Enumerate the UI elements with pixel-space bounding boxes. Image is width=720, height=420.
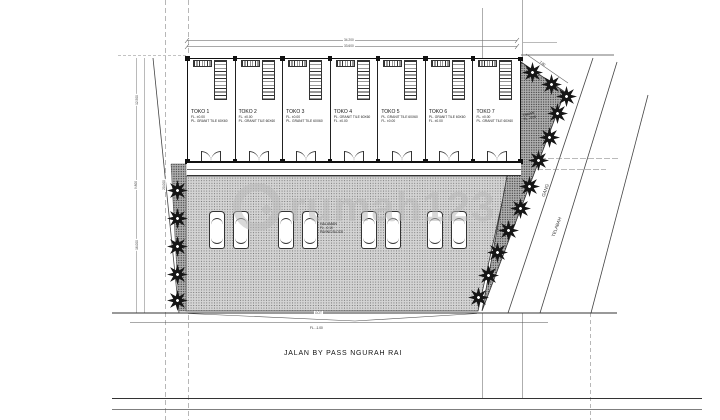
unit-note-2: FL. ±0.00 xyxy=(334,119,371,123)
tree-icon xyxy=(539,127,560,148)
staircase-icon xyxy=(214,60,227,100)
double-door-swing-icon xyxy=(344,151,364,161)
unit-label: TOKO 4 PL. GRANIT TILE 60X60 FL. ±0.00 xyxy=(334,109,371,123)
shop-unit-5: TOKO 5 PL. GRANIT TILE 60X60 FL. ±0.00 xyxy=(377,59,425,161)
tree-icon xyxy=(547,103,568,124)
unit-note-2: FL. ±0.00 xyxy=(429,119,466,123)
shop-unit-1: TOKO 1 FL. ±0.00 PL. GRANIT TILE 60X60 xyxy=(188,59,235,161)
window-hatch-icon xyxy=(383,60,402,67)
double-door-swing-icon xyxy=(296,151,316,161)
staircase-icon xyxy=(357,60,370,100)
unit-note-2: PL. GRANIT TILE 60X60 xyxy=(191,119,228,123)
unit-note-2: FL. ±0.00 xyxy=(381,119,418,123)
window-hatch-icon xyxy=(241,60,260,67)
tree-icon xyxy=(522,62,543,83)
shop-unit-6: TOKO 6 PL. GRANIT TILE 60X60 FL. ±0.00 xyxy=(425,59,473,161)
parked-car-icon xyxy=(361,211,377,249)
dimension-top-outer: 34.200 xyxy=(343,38,355,42)
window-hatch-icon xyxy=(336,60,355,67)
site-plan: TOKO 1 FL. ±0.00 PL. GRANIT TILE 60X60 T… xyxy=(0,0,720,420)
tree-icon xyxy=(167,264,188,285)
window-hatch-icon xyxy=(288,60,307,67)
tree-icon xyxy=(167,180,188,201)
window-hatch-icon xyxy=(478,60,497,67)
gutter-label: GOT xyxy=(314,311,323,315)
parked-car-icon xyxy=(278,211,294,249)
parked-car-icon xyxy=(427,211,443,249)
tree-icon xyxy=(556,86,577,107)
unit-note-2: PL. GRANIT TILE 60X60 xyxy=(286,119,323,123)
staircase-icon xyxy=(499,60,512,100)
column-icon xyxy=(518,57,523,62)
front-walkway xyxy=(187,162,521,176)
shop-unit-2: TOKO 2 FL. ±0.00 PL. GRANIT TILE 60X60 xyxy=(235,59,283,161)
tree-icon xyxy=(528,150,549,171)
tree-icon xyxy=(510,198,531,219)
tree-icon xyxy=(167,208,188,229)
unit-note-2: PL. GRANIT TILE 60X60 xyxy=(476,119,513,123)
unit-note-2: PL. GRANIT TILE 60X60 xyxy=(239,119,276,123)
double-door-swing-icon xyxy=(487,151,507,161)
unit-label: TOKO 6 PL. GRANIT TILE 60X60 FL. ±0.00 xyxy=(429,109,466,123)
double-door-swing-icon xyxy=(201,151,221,161)
staircase-icon xyxy=(309,60,322,100)
tree-icon xyxy=(498,220,519,241)
double-door-swing-icon xyxy=(392,151,412,161)
tree-icon xyxy=(487,242,508,263)
parked-car-icon xyxy=(302,211,318,249)
staircase-icon xyxy=(452,60,465,100)
dimension-left-inner: 20.000 xyxy=(162,179,166,191)
double-door-swing-icon xyxy=(439,151,459,161)
dimension-top-inner: 33.600 xyxy=(343,44,355,48)
shop-unit-7: TOKO 7 FL. ±0.00 PL. GRANIT TILE 60X60 xyxy=(472,59,520,161)
main-road-label: JALAN BY PASS NGURAH RAI xyxy=(284,350,402,359)
tree-icon xyxy=(468,287,489,308)
unit-label: TOKO 3 FL. ±0.00 PL. GRANIT TILE 60X60 xyxy=(286,109,323,123)
tree-icon xyxy=(519,176,540,197)
window-hatch-icon xyxy=(193,60,212,67)
shop-row-building: TOKO 1 FL. ±0.00 PL. GRANIT TILE 60X60 T… xyxy=(187,58,521,162)
dimension-left-mid: 9.800 xyxy=(134,180,138,190)
parked-car-icon xyxy=(451,211,467,249)
parked-car-icon xyxy=(385,211,401,249)
shop-unit-3: TOKO 3 FL. ±0.00 PL. GRANIT TILE 60X60 xyxy=(282,59,330,161)
unit-label: TOKO 1 FL. ±0.00 PL. GRANIT TILE 60X60 xyxy=(191,109,228,123)
parked-car-icon xyxy=(233,211,249,249)
driveway-apron xyxy=(188,314,477,322)
staircase-icon xyxy=(262,60,275,100)
staircase-icon xyxy=(404,60,417,100)
unit-label: TOKO 7 FL. ±0.00 PL. GRANIT TILE 60X60 xyxy=(476,109,513,123)
tree-icon xyxy=(167,290,188,311)
dimension-left-top: 12.500 xyxy=(135,94,139,106)
parked-car-icon xyxy=(209,211,225,249)
yard-label: HALAMAN FL. -0.10 PAVING BLOCK xyxy=(320,222,343,234)
yard-finish: PAVING BLOCK xyxy=(320,230,343,234)
double-door-swing-icon xyxy=(249,151,269,161)
unit-label: TOKO 5 PL. GRANIT TILE 60X60 FL. ±0.00 xyxy=(381,109,418,123)
tree-icon xyxy=(541,74,562,95)
gutter-level-label: FL. -1.00 xyxy=(310,326,323,330)
shop-unit-4: TOKO 4 PL. GRANIT TILE 60X60 FL. ±0.00 xyxy=(330,59,378,161)
unit-label: TOKO 2 FL. ±0.00 PL. GRANIT TILE 60X60 xyxy=(239,109,276,123)
tree-icon xyxy=(167,236,188,257)
channel-line xyxy=(591,95,648,313)
tree-icon xyxy=(478,265,499,286)
dimension-left-bottom: 16.000 xyxy=(135,239,139,251)
window-hatch-icon xyxy=(431,60,450,67)
